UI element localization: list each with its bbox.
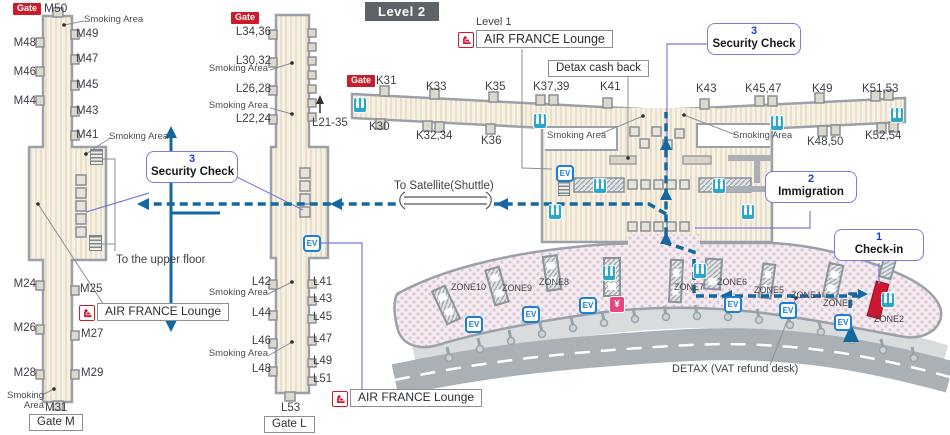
gate-label-l43: L43	[313, 293, 332, 305]
elevator-icon: EV	[579, 297, 597, 314]
ev-text: EV	[526, 310, 537, 319]
gate-label-m44: M44	[8, 95, 36, 107]
gate-label-m31: M31	[45, 402, 67, 414]
gate-label-m50: M50	[44, 2, 67, 15]
gate-label-k45-47: K45,47	[745, 83, 781, 95]
elevator-icon: EV	[556, 165, 574, 182]
smoking-area-label: Smoking Area	[206, 64, 268, 74]
stairs-icon	[558, 181, 570, 196]
gate-label-k37-39: K37,39	[533, 81, 569, 93]
gate-label-k33: K33	[426, 81, 446, 93]
gate-badge-m: Gate	[13, 3, 41, 15]
step-label: Security Check	[712, 38, 796, 51]
detax-desk-label: DETAX (VAT refund desk)	[672, 364, 798, 376]
gate-label-k30: K30	[369, 121, 389, 133]
smoking-area-label: Smoking Area	[109, 132, 168, 142]
gate-label-k36: K36	[481, 135, 501, 147]
smoking-area-label: Smoking Area	[206, 349, 268, 359]
gate-label-l46: L46	[249, 335, 271, 347]
step-number: 3	[151, 153, 233, 166]
detax-cashback-box: Detax cash back	[548, 60, 649, 77]
elevator-icon: EV	[465, 316, 483, 333]
terminal-map: Level 2 Gate M50 Smoking Area M49 M48 M4…	[0, 0, 950, 435]
immigration-callout: 2 Immigration	[765, 171, 857, 203]
gate-label-l51: L51	[313, 373, 332, 385]
upper-floor-label: To the upper floor	[116, 254, 206, 266]
gate-label-m27: M27	[81, 328, 103, 340]
lounge-icon	[332, 391, 348, 407]
gate-label-k49: K49	[812, 83, 832, 95]
gate-label-m46: M46	[8, 66, 36, 78]
gate-label-m49: M49	[76, 28, 98, 40]
gate-l-box: Gate L	[264, 416, 315, 433]
zone-label-7: ZONE7	[674, 283, 704, 292]
gate-label-l48: L48	[249, 363, 271, 375]
gate-badge-k: Gate	[347, 75, 375, 87]
gate-label-l49: L49	[313, 355, 332, 367]
toilet-icon	[593, 178, 607, 194]
gate-label-m24: M24	[8, 278, 36, 290]
gate-label-l22-24: L22,24	[233, 113, 271, 125]
ev-text: EV	[307, 239, 318, 248]
toilet-icon	[533, 113, 547, 129]
ev-text: EV	[560, 169, 571, 178]
ev-text: EV	[728, 300, 739, 309]
ev-text: EV	[469, 320, 480, 329]
zone-label-8: ZONE8	[539, 278, 569, 287]
gate-label-k32-34: K32,34	[416, 130, 452, 142]
gate-label-m47: M47	[76, 53, 98, 65]
zone-label-5: ZONE5	[754, 286, 784, 295]
smoking-area-label: Smoking Area	[0, 391, 44, 411]
elevator-icon: EV	[522, 306, 540, 323]
gate-label-l53: L53	[281, 402, 300, 414]
gate-badge-l: Gate	[231, 12, 259, 24]
gate-label-m43: M43	[76, 105, 98, 117]
toilet-icon	[741, 204, 755, 220]
lounge-icon	[79, 305, 95, 321]
lounge-icon	[458, 32, 474, 48]
gate-label-l26-28: L26,28	[233, 83, 271, 95]
ev-text: EV	[838, 318, 849, 327]
gate-m-box: Gate M	[29, 414, 83, 431]
gate-label-k52-54: K52,54	[865, 130, 901, 142]
gate-label-k48-50: K48,50	[807, 136, 843, 148]
elevator-icon: EV	[834, 314, 852, 331]
gate-label-k31: K31	[376, 75, 396, 87]
zone-label-2: ZONE2	[874, 315, 904, 324]
checkin-callout: 1 Check-in	[834, 229, 924, 261]
gate-label-l34-36: L34,36	[233, 26, 271, 38]
gate-range-label-l21-35: L21-35	[312, 117, 348, 129]
gate-label-m25: M25	[80, 283, 102, 295]
gate-label-m41: M41	[76, 129, 98, 141]
step-label: Check-in	[839, 244, 919, 257]
gate-label-k41: K41	[600, 81, 620, 93]
toilet-icon	[890, 107, 904, 123]
shuttle-track-symbol	[396, 191, 494, 210]
shuttle-label: To Satellite(Shuttle)	[394, 180, 494, 192]
toilet-icon	[881, 292, 895, 308]
level-badge: Level 2	[365, 2, 439, 21]
toilet-icon	[602, 265, 616, 281]
step-number: 3	[712, 25, 796, 38]
toilet-icon	[548, 204, 562, 220]
currency-exchange-icon: ¥	[609, 296, 625, 313]
gate-label-m29: M29	[81, 367, 103, 379]
gate-label-l41: L41	[313, 276, 332, 288]
gate-label-k43: K43	[696, 83, 716, 95]
gate-label-l45: L45	[313, 311, 332, 323]
elevator-icon: EV	[779, 302, 797, 319]
zone-label-3: ZONE3	[823, 299, 853, 308]
gate-label-m28: M28	[8, 367, 36, 379]
lounge-label-m: AIR FRANCE Lounge	[97, 303, 229, 321]
ev-text: EV	[583, 301, 594, 310]
gate-label-l44: L44	[249, 307, 271, 319]
elevator-icon: EV	[724, 296, 742, 313]
smoking-area-label: Smoking Area	[84, 15, 143, 25]
elevator-icon: EV	[303, 235, 321, 252]
ev-text: EV	[783, 306, 794, 315]
lounge-label-level1: AIR FRANCE Lounge	[476, 30, 613, 48]
smoking-area-label: Smoking Area	[547, 131, 606, 141]
step-number: 2	[770, 173, 852, 186]
security-check-callout-k: 3 Security Check	[707, 23, 801, 55]
smoking-area-label: Smoking Area	[206, 101, 268, 111]
gate-label-m26: M26	[8, 322, 36, 334]
level1-label: Level 1	[476, 17, 511, 29]
toilet-icon	[712, 178, 726, 194]
smoking-area-label: Smoking Area	[733, 131, 792, 141]
zone-label-10: ZONE10	[451, 283, 486, 292]
m-security-booths	[76, 175, 86, 237]
toilet-icon	[770, 115, 784, 131]
zone-label-6: ZONE6	[717, 278, 747, 287]
step-label: Security Check	[151, 166, 233, 179]
stairs-icon	[90, 149, 103, 165]
gate-label-m48: M48	[8, 37, 36, 49]
zone-label-9: ZONE9	[502, 284, 532, 293]
stairs-icon	[89, 235, 102, 251]
step-label: Immigration	[770, 186, 852, 199]
lounge-label-l: AIR FRANCE Lounge	[350, 389, 482, 407]
zone-label-4: ZONE4	[791, 291, 821, 300]
gate-label-l47: L47	[313, 333, 332, 345]
security-check-callout: 3 Security Check	[146, 151, 238, 183]
toilet-icon	[693, 263, 707, 279]
flow-arrow-down	[165, 320, 177, 332]
gate-label-k35: K35	[485, 81, 505, 93]
step-number: 1	[839, 231, 919, 244]
yen-text: ¥	[614, 299, 620, 310]
toilet-icon	[353, 97, 367, 113]
gate-label-k51-53: K51,53	[862, 83, 898, 95]
gate-label-m45: M45	[76, 79, 98, 91]
smoking-area-label: Smoking Area	[206, 288, 268, 298]
map-shapes	[0, 0, 950, 435]
l-range-arrow	[316, 95, 324, 113]
